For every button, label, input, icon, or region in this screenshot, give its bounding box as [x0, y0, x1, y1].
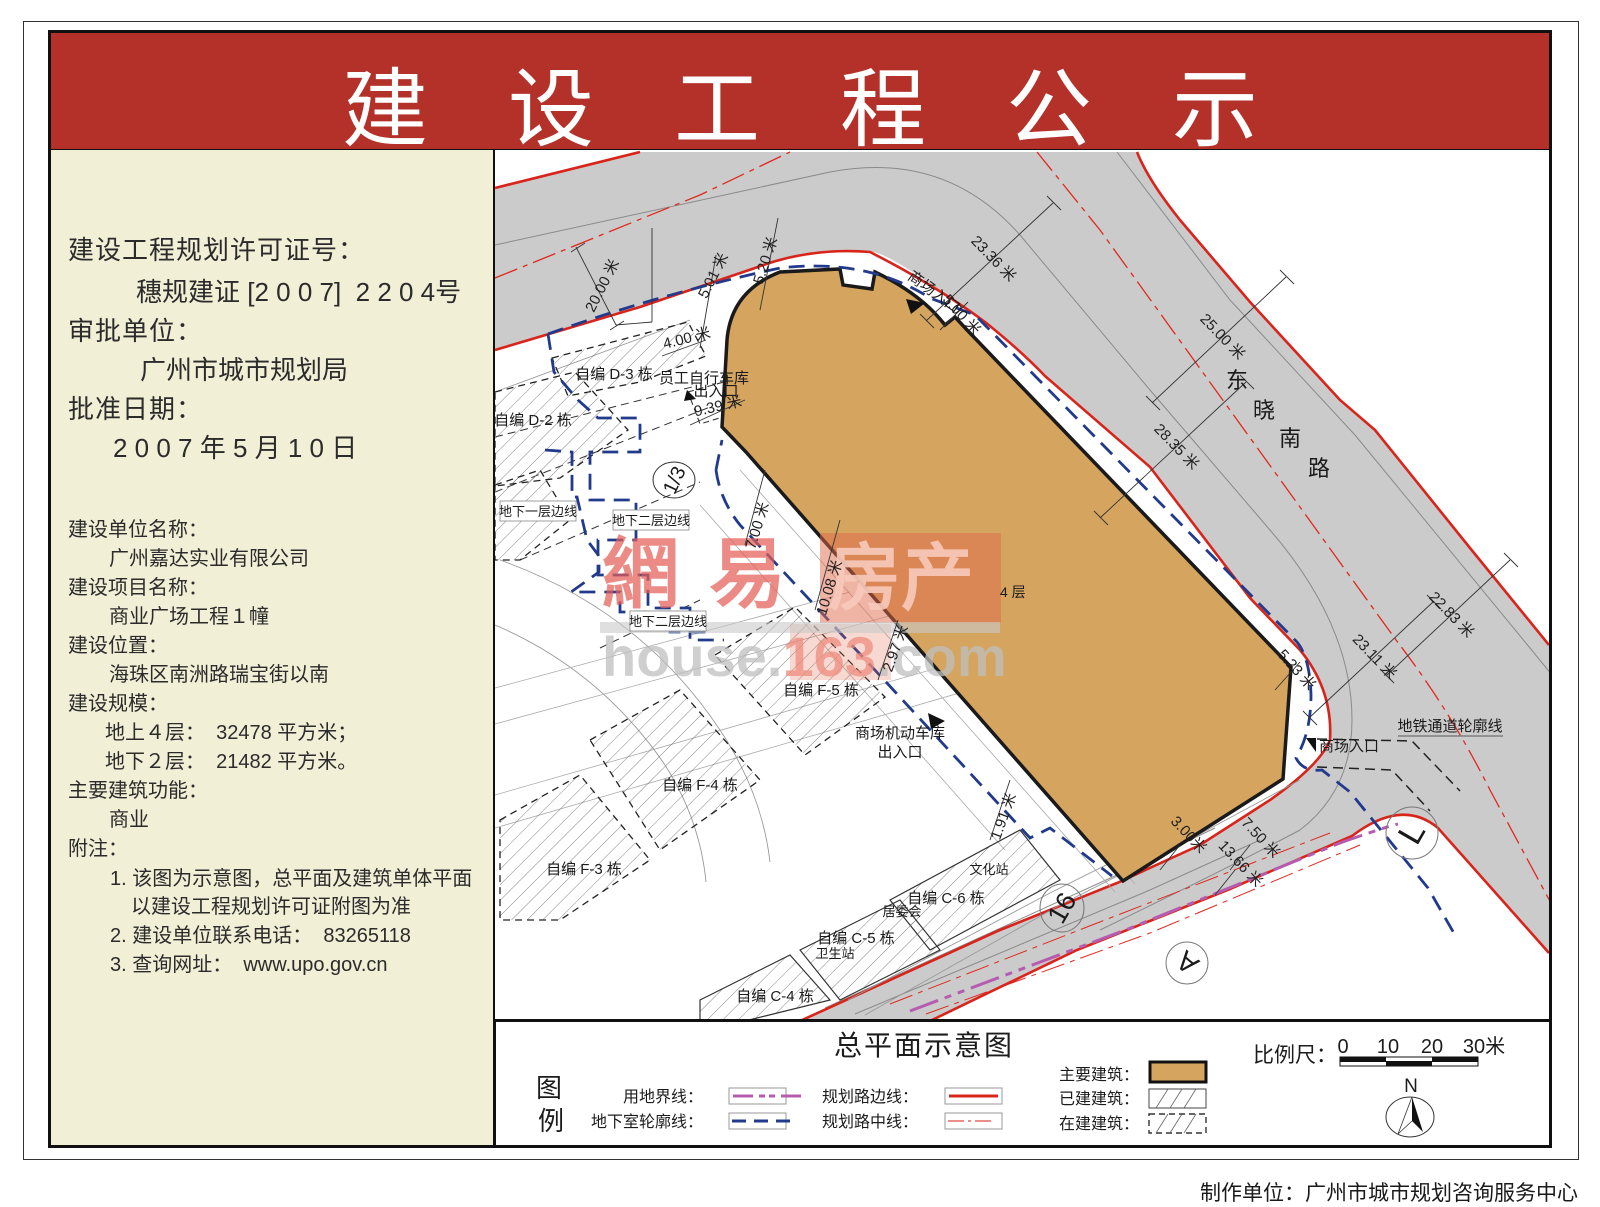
svg-text:網易: 網易 — [602, 532, 816, 618]
svg-text:主要建筑：: 主要建筑： — [1059, 1066, 1139, 1084]
svg-text:house.163.com: house.163.com — [602, 625, 1007, 688]
svg-text:出入口: 出入口 — [877, 744, 922, 761]
svg-text:卫生站: 卫生站 — [815, 946, 854, 961]
svg-text:自编 C-5 栋: 自编 C-5 栋 — [817, 929, 895, 947]
svg-text:商场入口: 商场入口 — [1319, 738, 1379, 755]
svg-text:比例尺：: 比例尺： — [1253, 1044, 1337, 1067]
svg-text:地下二层边线: 地下二层边线 — [629, 614, 707, 629]
svg-text:居委会: 居委会 — [882, 904, 921, 919]
svg-text:自编 C-4 栋: 自编 C-4 栋 — [736, 987, 814, 1005]
svg-text:自编 F-4 栋: 自编 F-4 栋 — [662, 776, 738, 794]
svg-text:自编 F-5 栋: 自编 F-5 栋 — [783, 681, 859, 699]
svg-text:用地界线：: 用地界线： — [623, 1088, 703, 1106]
svg-text:30米: 30米 — [1463, 1035, 1505, 1058]
svg-text:自编 D-2 栋: 自编 D-2 栋 — [495, 411, 572, 429]
svg-text:20: 20 — [1421, 1036, 1443, 1058]
svg-text:出入口: 出入口 — [693, 383, 738, 400]
svg-text:总平面示意图: 总平面示意图 — [834, 1030, 1014, 1061]
svg-text:在建建筑：: 在建建筑： — [1059, 1115, 1139, 1133]
svg-text:地下室轮廓线：: 地下室轮廓线： — [591, 1113, 703, 1131]
svg-text:规划路中线：: 规划路中线： — [822, 1113, 918, 1131]
svg-text:地铁通道轮廓线: 地铁通道轮廓线 — [1397, 718, 1502, 735]
svg-text:0: 0 — [1337, 1036, 1348, 1058]
svg-text:4 层: 4 层 — [1000, 584, 1026, 600]
svg-text:规划路边线：: 规划路边线： — [822, 1088, 918, 1106]
svg-text:文化站: 文化站 — [969, 862, 1008, 877]
svg-text:房产: 房产 — [828, 538, 974, 619]
svg-text:自编 F-3 栋: 自编 F-3 栋 — [546, 860, 622, 878]
svg-text:地下一层边线: 地下一层边线 — [499, 504, 577, 519]
svg-text:已建建筑：: 已建建筑： — [1059, 1090, 1139, 1108]
svg-text:地下二层边线: 地下二层边线 — [612, 513, 690, 528]
svg-text:N: N — [1404, 1076, 1418, 1097]
svg-text:自编 D-3 栋: 自编 D-3 栋 — [575, 365, 653, 383]
svg-text:图: 图 — [536, 1073, 562, 1103]
svg-text:路: 路 — [1308, 456, 1330, 481]
svg-text:例: 例 — [538, 1106, 564, 1136]
svg-text:东: 东 — [1226, 368, 1248, 393]
svg-text:南: 南 — [1279, 426, 1301, 451]
svg-text:晓: 晓 — [1253, 398, 1275, 423]
svg-text:10: 10 — [1377, 1036, 1399, 1058]
